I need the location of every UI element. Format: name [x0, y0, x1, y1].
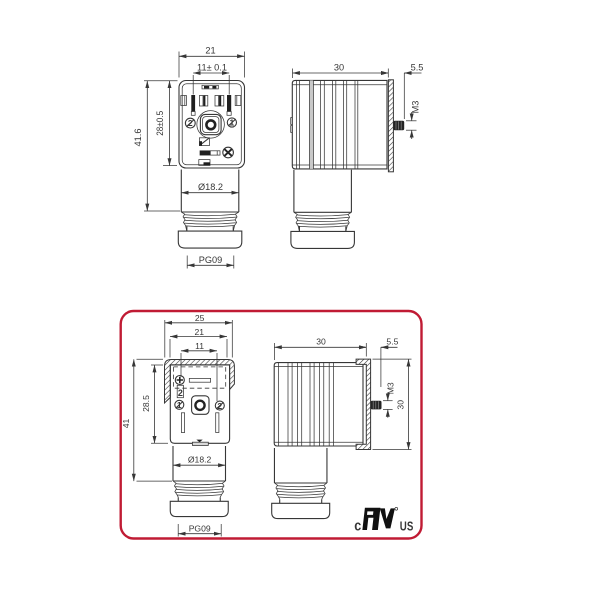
svg-text:2: 2: [178, 388, 183, 398]
svg-text:2: 2: [188, 118, 193, 128]
svg-text:28±0.5: 28±0.5: [155, 111, 165, 136]
svg-text:30: 30: [395, 400, 405, 410]
svg-text:PG09: PG09: [189, 523, 211, 533]
svg-text:M3: M3: [410, 101, 420, 114]
svg-text:11: 11: [195, 341, 204, 351]
svg-text:5.5: 5.5: [411, 62, 424, 72]
svg-text:25: 25: [195, 313, 205, 323]
svg-text:11± 0.1: 11± 0.1: [197, 62, 227, 72]
svg-text:28.5: 28.5: [141, 395, 151, 412]
svg-text:US: US: [400, 518, 414, 533]
svg-text:1: 1: [230, 118, 235, 128]
svg-text:21: 21: [195, 327, 205, 337]
svg-text:41: 41: [121, 419, 131, 429]
svg-text:2: 2: [217, 401, 222, 411]
svg-text:PG09: PG09: [199, 255, 223, 265]
svg-text:5.5: 5.5: [386, 337, 398, 347]
svg-text:M3: M3: [386, 382, 396, 394]
svg-text:30: 30: [316, 337, 326, 347]
svg-text:c: c: [354, 517, 361, 534]
svg-text:1: 1: [177, 400, 182, 410]
svg-text:Ø18.2: Ø18.2: [188, 454, 212, 464]
svg-text:Ø18.2: Ø18.2: [198, 182, 223, 192]
svg-text:41.6: 41.6: [133, 129, 143, 147]
svg-text:30: 30: [334, 62, 344, 72]
svg-text:21: 21: [205, 45, 215, 55]
